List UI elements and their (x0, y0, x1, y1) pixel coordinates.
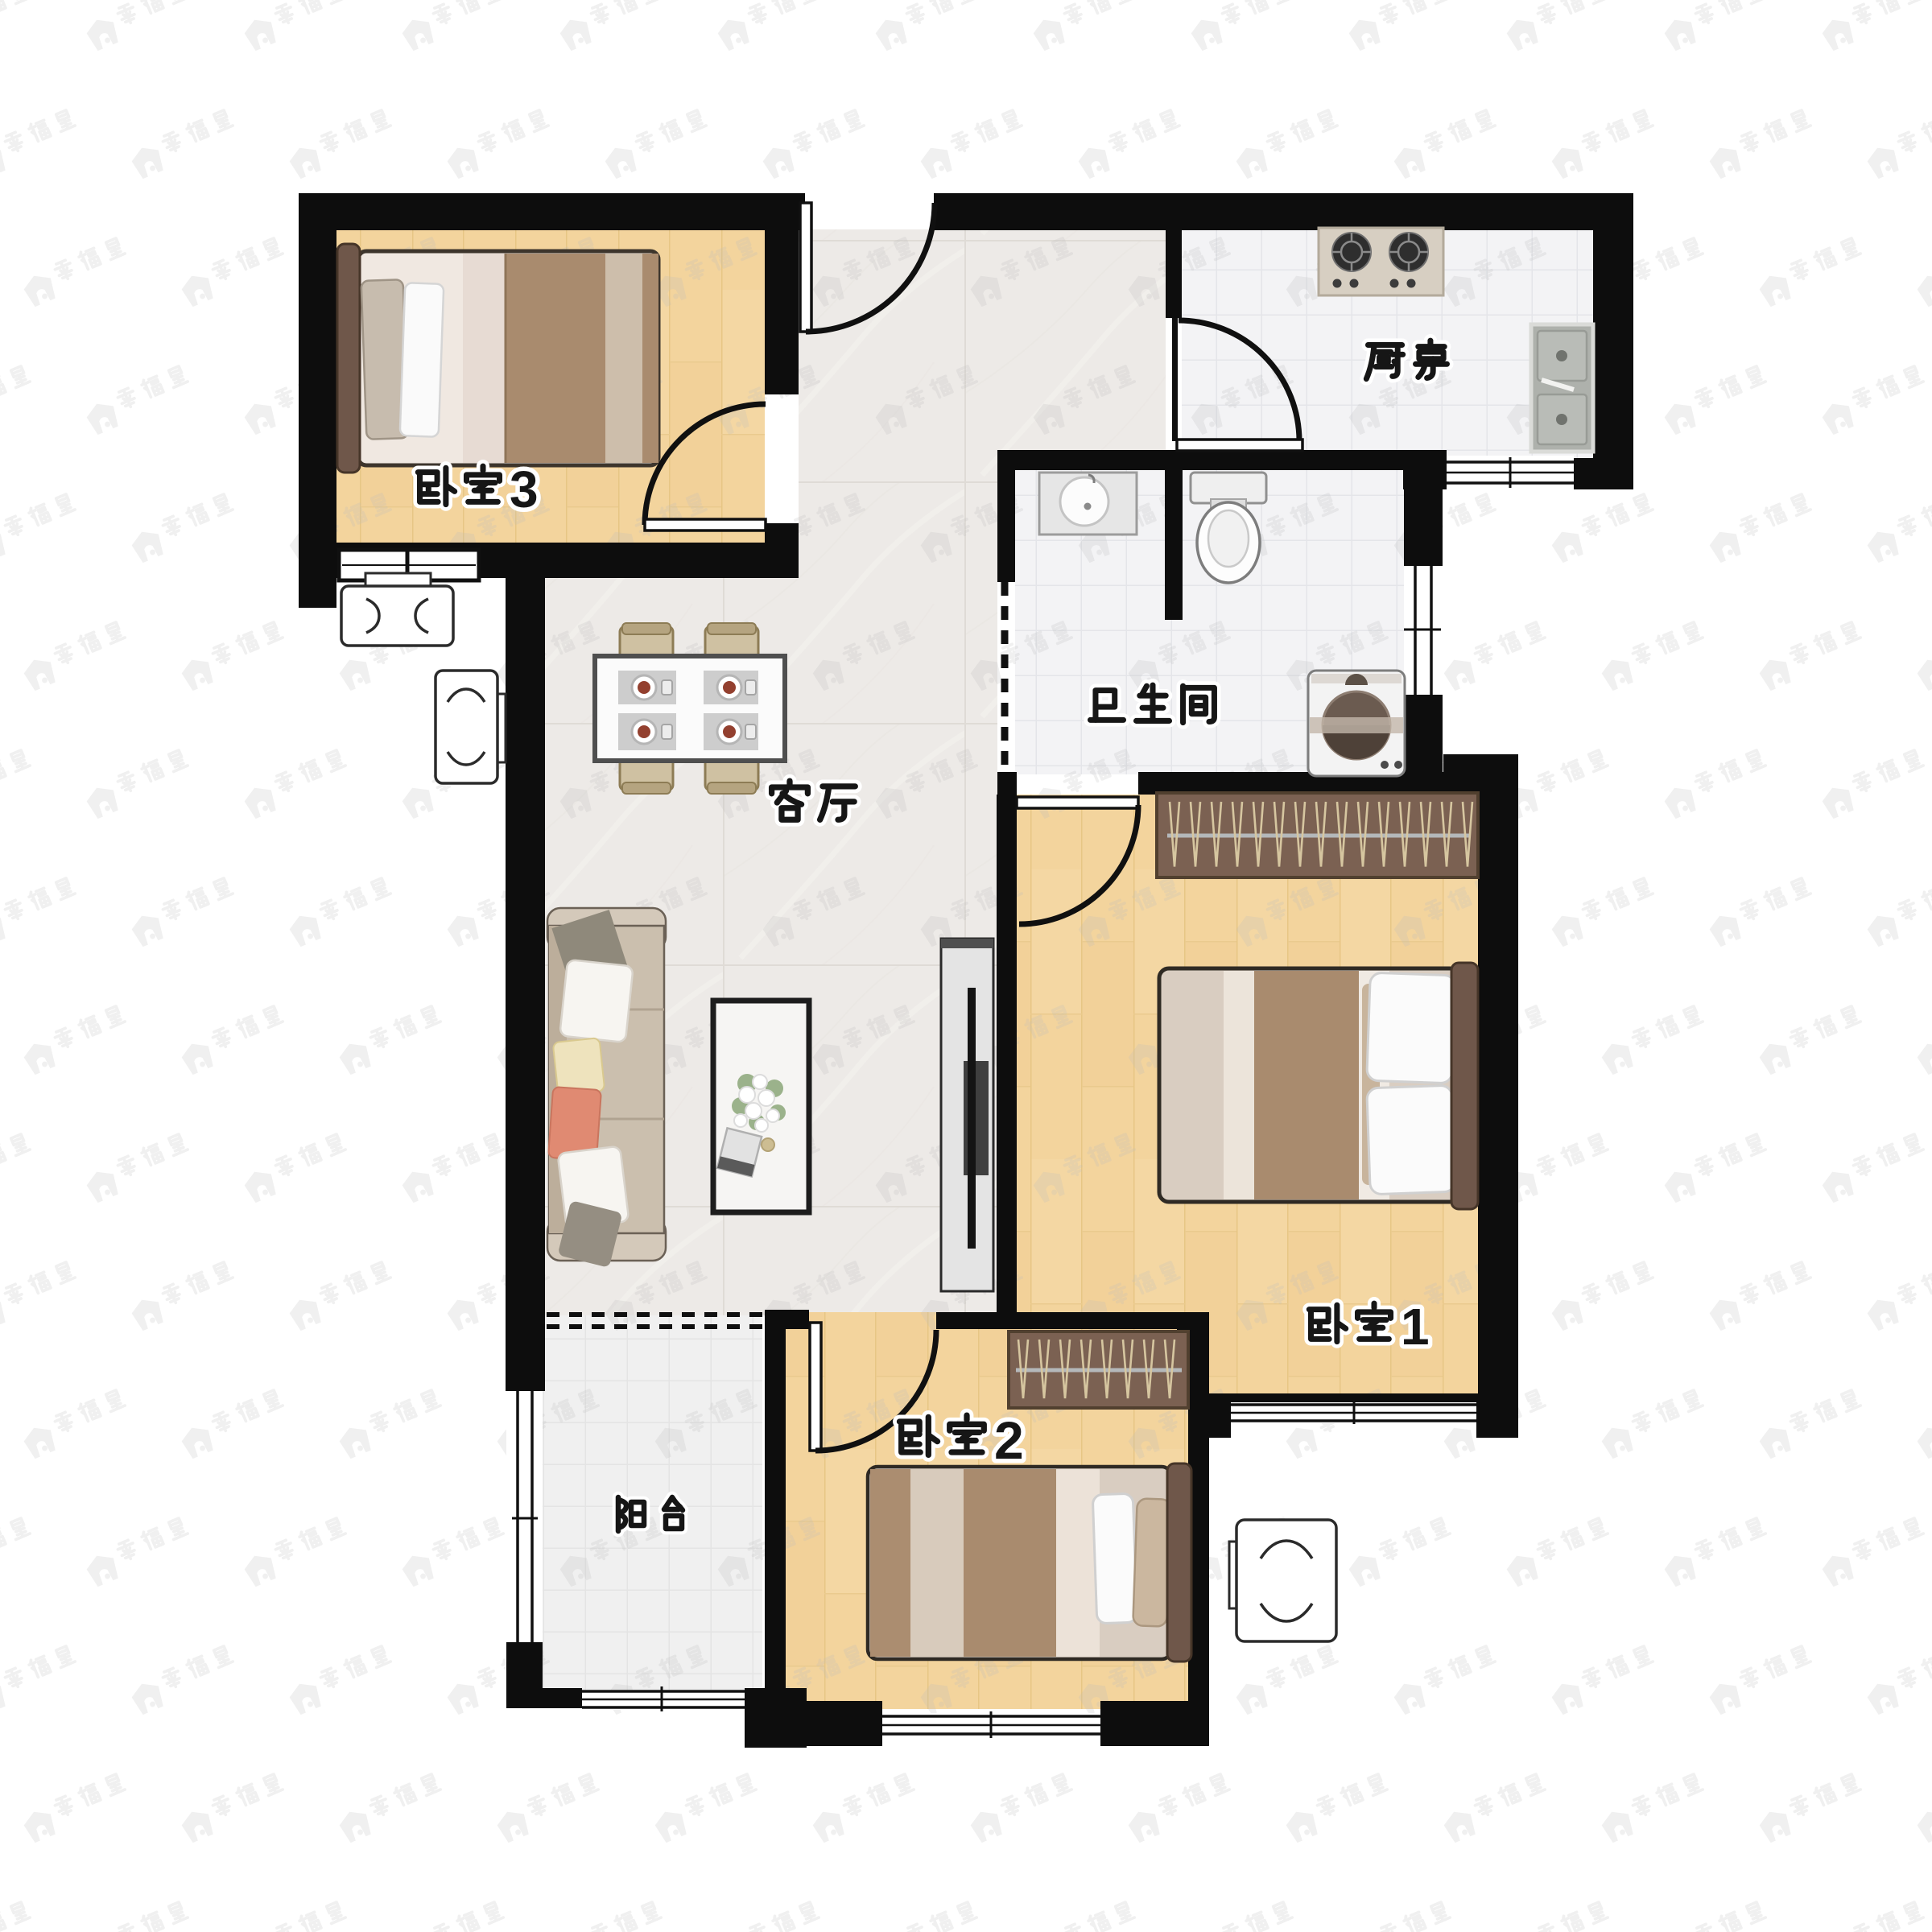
svg-text:3: 3 (510, 460, 539, 518)
svg-text:1: 1 (1401, 1298, 1430, 1356)
svg-text:2: 2 (994, 1410, 1024, 1470)
